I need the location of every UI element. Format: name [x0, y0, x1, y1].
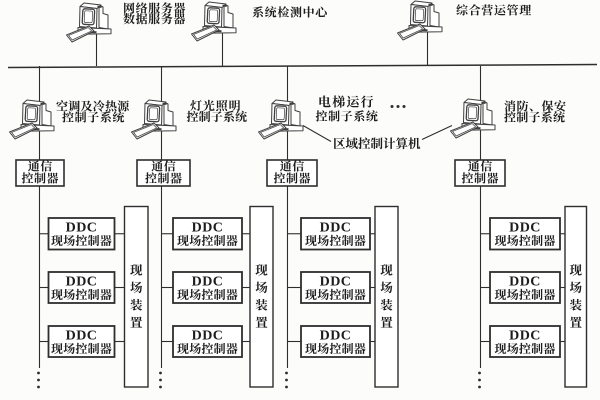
svg-text:DDC: DDC	[509, 329, 541, 344]
svg-text:DDC: DDC	[509, 275, 541, 290]
svg-text:DDC: DDC	[66, 221, 98, 236]
svg-text:DDC: DDC	[320, 329, 352, 344]
svg-text:DDC: DDC	[192, 221, 224, 236]
svg-text:DDC: DDC	[192, 329, 224, 344]
svg-text:DDC: DDC	[320, 275, 352, 290]
svg-text:DDC: DDC	[320, 221, 352, 236]
svg-text:DDC: DDC	[66, 329, 98, 344]
svg-text:DDC: DDC	[509, 221, 541, 236]
svg-text:DDC: DDC	[66, 275, 98, 290]
svg-text:DDC: DDC	[192, 275, 224, 290]
